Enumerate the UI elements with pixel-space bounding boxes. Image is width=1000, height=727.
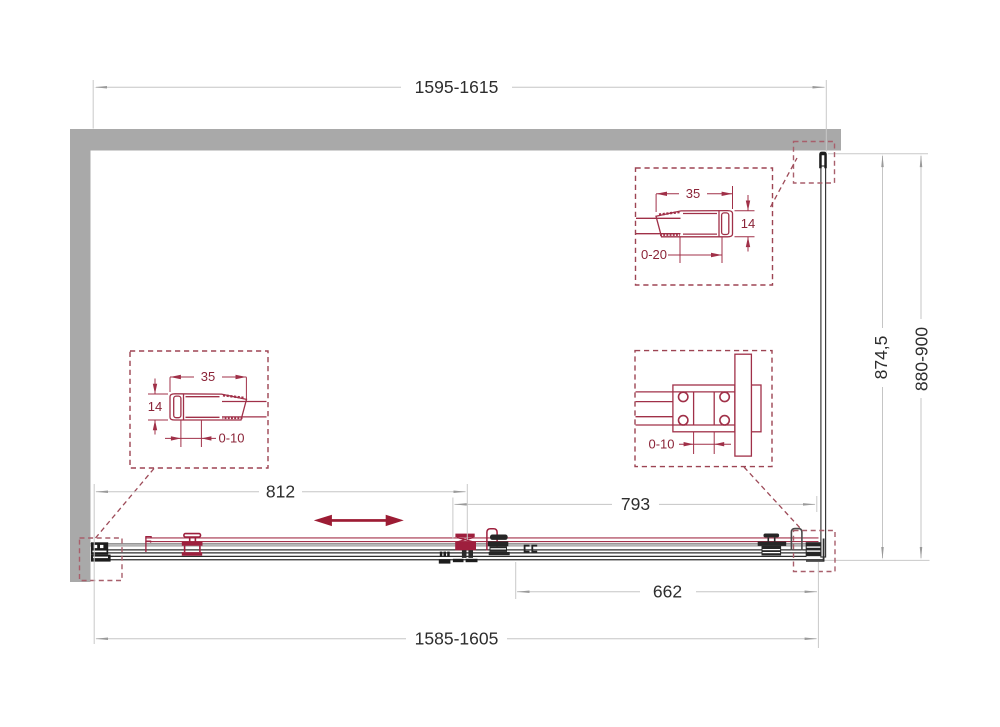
- svg-text:812: 812: [266, 481, 295, 501]
- svg-text:14: 14: [741, 216, 755, 231]
- svg-text:662: 662: [653, 582, 682, 602]
- svg-text:0-10: 0-10: [648, 436, 674, 451]
- svg-text:35: 35: [201, 369, 215, 384]
- svg-text:0-20: 0-20: [641, 247, 667, 262]
- svg-text:874,5: 874,5: [871, 336, 891, 380]
- svg-text:14: 14: [148, 399, 162, 414]
- svg-text:0-10: 0-10: [218, 431, 244, 446]
- svg-text:793: 793: [621, 494, 650, 514]
- svg-text:880-900: 880-900: [912, 327, 932, 391]
- svg-text:35: 35: [686, 186, 700, 201]
- svg-text:1585-1605: 1585-1605: [415, 629, 499, 649]
- svg-text:1595-1615: 1595-1615: [415, 77, 499, 97]
